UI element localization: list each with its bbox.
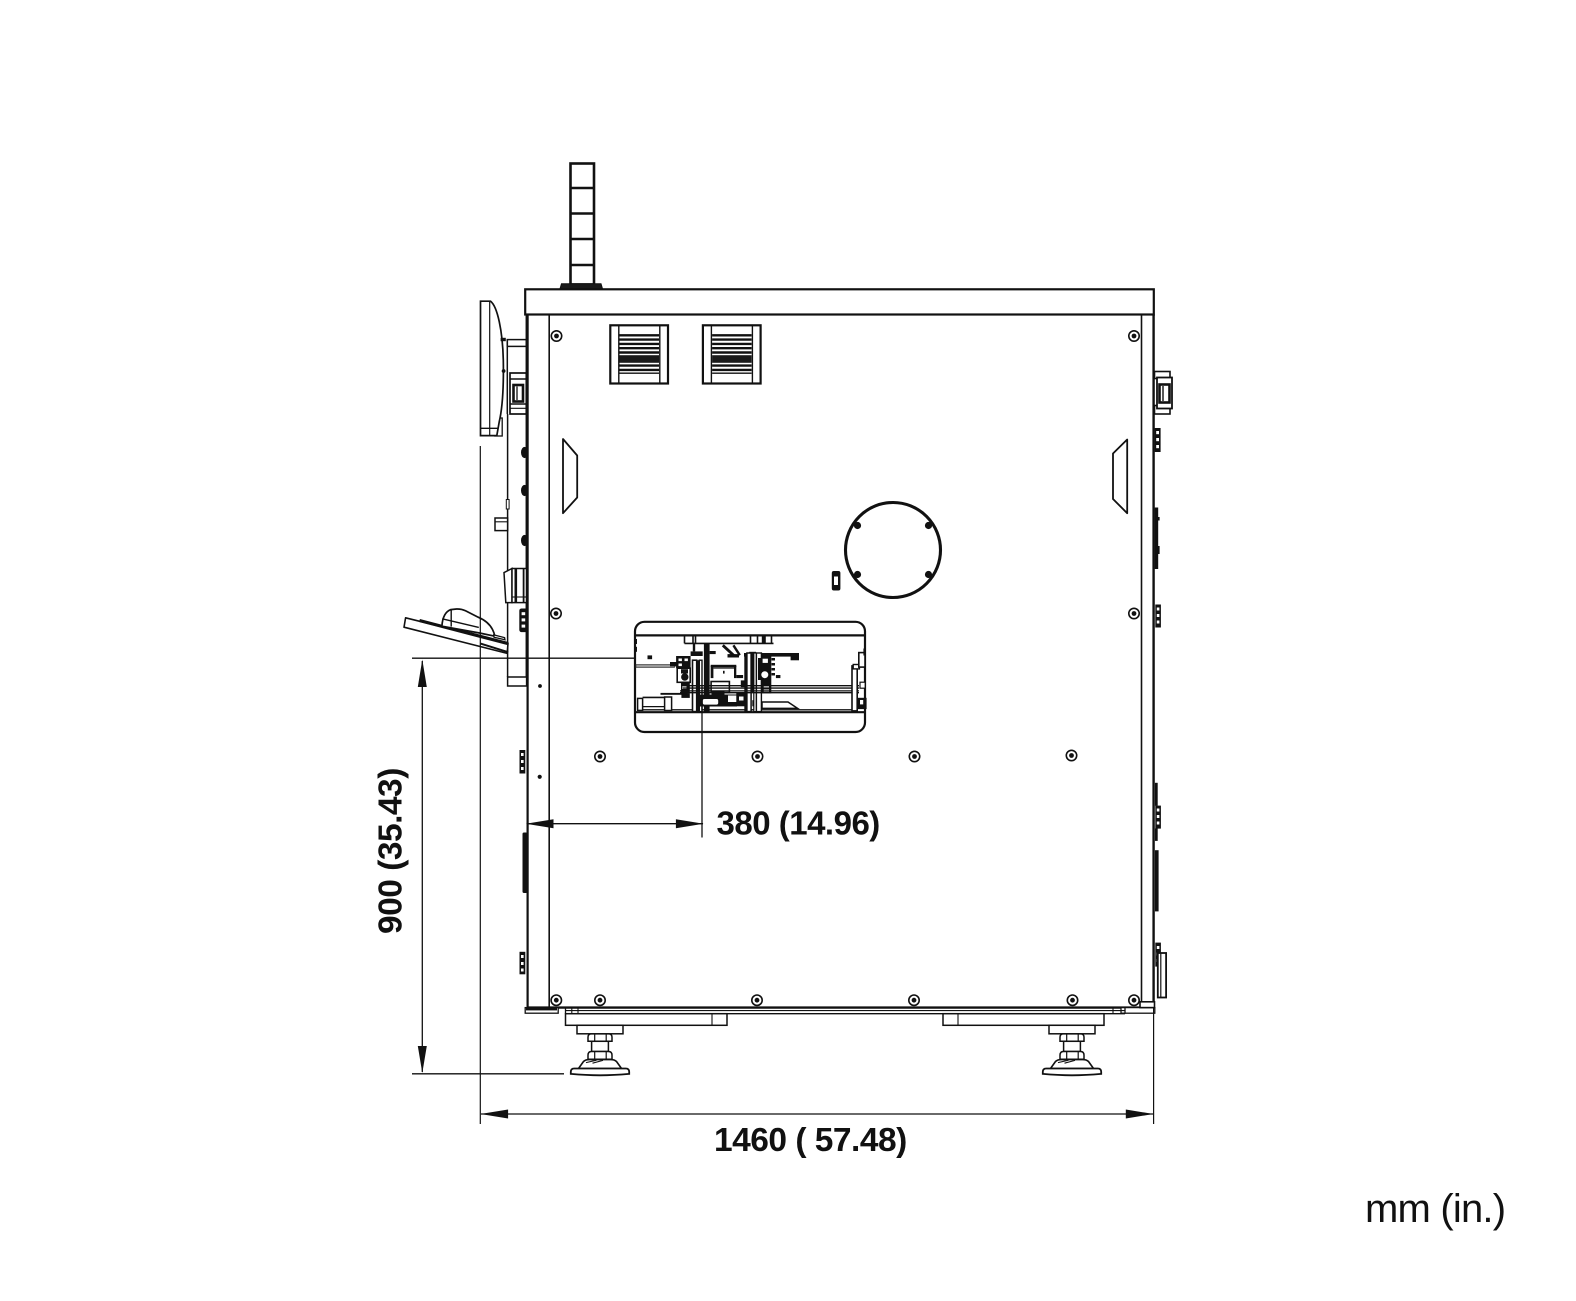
- svg-text:380 (14.96): 380 (14.96): [717, 805, 880, 842]
- svg-text:mm (in.): mm (in.): [1365, 1187, 1505, 1231]
- svg-text:1460 ( 57.48): 1460 ( 57.48): [714, 1122, 907, 1159]
- svg-text:900 (35.43): 900 (35.43): [373, 768, 410, 934]
